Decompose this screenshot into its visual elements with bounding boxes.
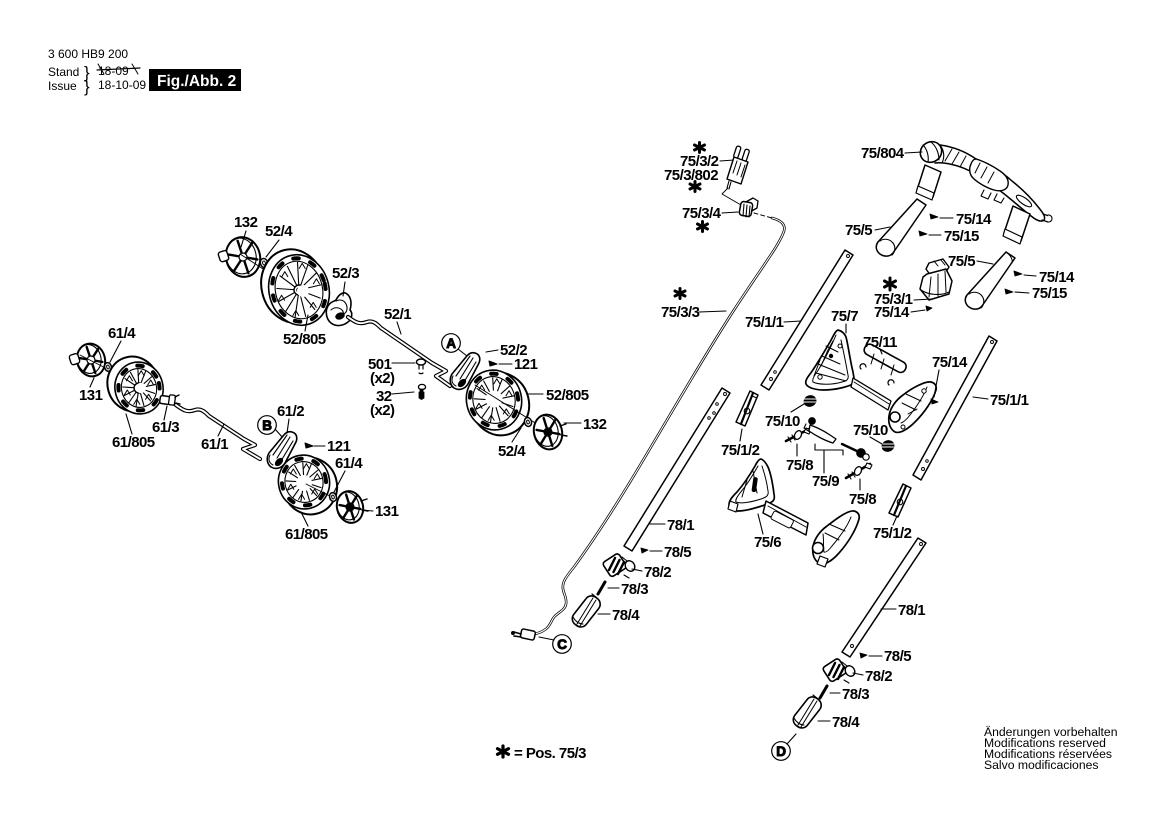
svg-text:3 600 HB9 200: 3 600 HB9 200 — [48, 47, 128, 61]
svg-text:B: B — [262, 418, 272, 433]
svg-text:75/5: 75/5 — [845, 222, 872, 239]
svg-text:75/10: 75/10 — [765, 413, 800, 430]
svg-text:75/8: 75/8 — [849, 491, 876, 508]
svg-text:52/805: 52/805 — [546, 387, 589, 404]
svg-text:61/4: 61/4 — [335, 455, 363, 472]
svg-text:61/1: 61/1 — [201, 436, 228, 453]
svg-text:52/3: 52/3 — [332, 265, 359, 282]
svg-text:75/10: 75/10 — [853, 422, 888, 439]
svg-text:}: } — [84, 77, 90, 96]
svg-text:52/4: 52/4 — [498, 443, 526, 460]
svg-text:78/2: 78/2 — [865, 668, 892, 685]
svg-text:75/14: 75/14 — [956, 211, 992, 228]
svg-text:61/805: 61/805 — [285, 526, 328, 543]
svg-text:78/3: 78/3 — [842, 686, 869, 703]
svg-text:75/15: 75/15 — [1032, 285, 1067, 302]
svg-text:61/4: 61/4 — [108, 325, 136, 342]
svg-text:75/11: 75/11 — [863, 334, 897, 351]
svg-text:78/4: 78/4 — [832, 714, 860, 731]
svg-text:75/14: 75/14 — [932, 354, 968, 371]
svg-text:= Pos. 75/3: = Pos. 75/3 — [514, 745, 586, 762]
svg-text:52/805: 52/805 — [283, 331, 326, 348]
svg-text:75/14: 75/14 — [874, 304, 910, 321]
svg-text:Issue: Issue — [48, 79, 77, 93]
svg-text:75/3/3: 75/3/3 — [661, 304, 700, 321]
svg-text:(x2): (x2) — [370, 370, 395, 387]
svg-text:75/8: 75/8 — [786, 457, 813, 474]
svg-text:75/15: 75/15 — [944, 228, 979, 245]
svg-text:18-10-09: 18-10-09 — [98, 78, 146, 92]
svg-text:75/3/4: 75/3/4 — [682, 205, 722, 222]
svg-text:75/9: 75/9 — [812, 473, 839, 490]
svg-text:75/1/1: 75/1/1 — [745, 314, 784, 331]
svg-text:61/3: 61/3 — [152, 419, 179, 436]
svg-text:(x2): (x2) — [370, 402, 395, 419]
svg-text:Stand: Stand — [48, 65, 79, 79]
svg-text:78/4: 78/4 — [612, 607, 640, 624]
svg-text:75/6: 75/6 — [754, 534, 781, 551]
svg-text:75/14: 75/14 — [1039, 269, 1075, 286]
svg-text:75/1/2: 75/1/2 — [873, 525, 912, 542]
svg-text:Fig./Abb. 2: Fig./Abb. 2 — [157, 73, 236, 90]
svg-text:75/7: 75/7 — [831, 308, 858, 325]
svg-text:61/2: 61/2 — [277, 403, 304, 420]
svg-text:61/805: 61/805 — [112, 434, 155, 451]
svg-text:131: 131 — [375, 503, 399, 520]
svg-text:75/1/1: 75/1/1 — [990, 392, 1029, 409]
svg-text:C: C — [557, 637, 567, 652]
svg-text:52/4: 52/4 — [265, 223, 293, 240]
svg-text:121: 121 — [514, 356, 538, 373]
svg-text:Salvo modificaciones: Salvo modificaciones — [984, 758, 1098, 772]
svg-text:132: 132 — [234, 214, 258, 231]
svg-text:A: A — [446, 336, 456, 351]
svg-text:78/5: 78/5 — [884, 648, 911, 665]
svg-text:D: D — [776, 744, 786, 759]
svg-text:75/5: 75/5 — [948, 253, 975, 270]
svg-text:75/3/802: 75/3/802 — [664, 167, 718, 184]
svg-text:75/1/2: 75/1/2 — [721, 442, 760, 459]
svg-text:132: 132 — [583, 416, 607, 433]
svg-text:121: 121 — [327, 438, 351, 455]
svg-text:78/2: 78/2 — [644, 564, 671, 581]
svg-text:78/5: 78/5 — [664, 544, 691, 561]
svg-text:131: 131 — [79, 387, 103, 404]
svg-text:78/1: 78/1 — [667, 517, 694, 534]
svg-text:78/1: 78/1 — [898, 602, 925, 619]
svg-text:78/3: 78/3 — [621, 581, 648, 598]
svg-text:75/804: 75/804 — [861, 145, 905, 162]
svg-text:52/1: 52/1 — [384, 306, 411, 323]
